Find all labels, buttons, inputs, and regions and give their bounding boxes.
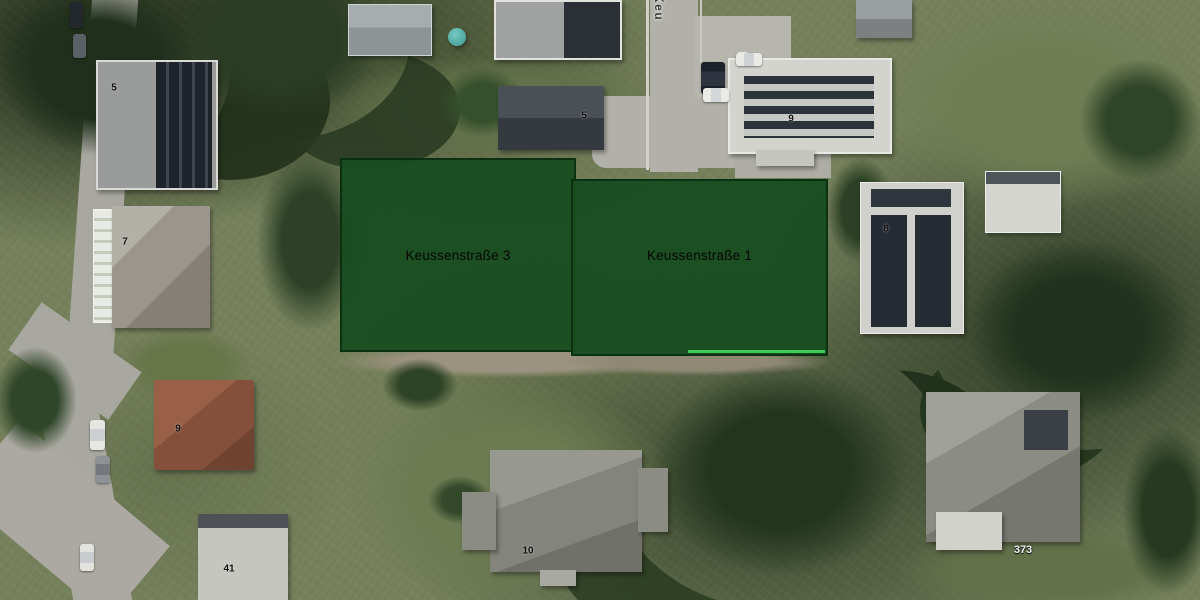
building-solar-top-left bbox=[96, 60, 218, 190]
building-9-wing bbox=[756, 150, 814, 166]
parcel-number-label: 373 bbox=[1014, 544, 1032, 556]
car bbox=[73, 34, 86, 58]
building-5-dark-roof bbox=[498, 86, 604, 150]
car bbox=[96, 456, 110, 483]
car bbox=[80, 544, 94, 571]
building-41 bbox=[198, 514, 288, 600]
house-number-label: 9 bbox=[788, 114, 794, 125]
road-turning-area bbox=[592, 96, 740, 168]
street-name-label: Keu bbox=[652, 0, 666, 21]
villa-wing-west bbox=[462, 492, 496, 550]
building-8-solar bbox=[860, 182, 964, 334]
house-number-label: 5 bbox=[581, 111, 587, 122]
tree-canopy bbox=[610, 330, 950, 600]
building-9-top-right bbox=[728, 58, 892, 154]
villa-wing-east bbox=[638, 468, 668, 532]
aerial-basemap: Keussenstraße 3 Keussenstraße 1 Keu 5 7 … bbox=[0, 0, 1200, 600]
parcel-label: Keussenstraße 3 bbox=[405, 248, 510, 263]
water-tank bbox=[448, 28, 466, 46]
parcel-boundary-highlight bbox=[688, 350, 825, 353]
house-number-label: 5 bbox=[111, 83, 117, 94]
villa-porch bbox=[540, 570, 576, 586]
parcel-overlay-keussenstrasse-1[interactable]: Keussenstraße 1 bbox=[571, 179, 828, 356]
building-right-small bbox=[986, 172, 1060, 232]
shed-top-right bbox=[856, 0, 912, 38]
tree-canopy bbox=[370, 350, 470, 420]
car bbox=[703, 88, 729, 102]
sidewalk-line bbox=[646, 0, 649, 170]
house-number-label: 10 bbox=[522, 546, 533, 557]
house-number-label: 9 bbox=[175, 424, 181, 435]
building-373-annex bbox=[936, 512, 1002, 550]
parcel-label: Keussenstraße 1 bbox=[647, 248, 752, 263]
house-number-label: 8 bbox=[883, 224, 889, 235]
building-red-roof bbox=[154, 380, 254, 470]
greenhouse bbox=[94, 210, 114, 322]
parcel-overlay-keussenstrasse-3[interactable]: Keussenstraße 3 bbox=[340, 158, 576, 352]
villa-main bbox=[490, 450, 642, 572]
shed-top-left-center bbox=[348, 4, 432, 56]
car bbox=[90, 420, 105, 450]
building-hip-roof-left bbox=[112, 206, 210, 328]
house-number-label: 7 bbox=[122, 237, 128, 248]
car bbox=[736, 53, 762, 66]
building-top-center bbox=[494, 0, 622, 60]
house-number-label: 41 bbox=[223, 564, 234, 575]
car bbox=[70, 2, 83, 28]
